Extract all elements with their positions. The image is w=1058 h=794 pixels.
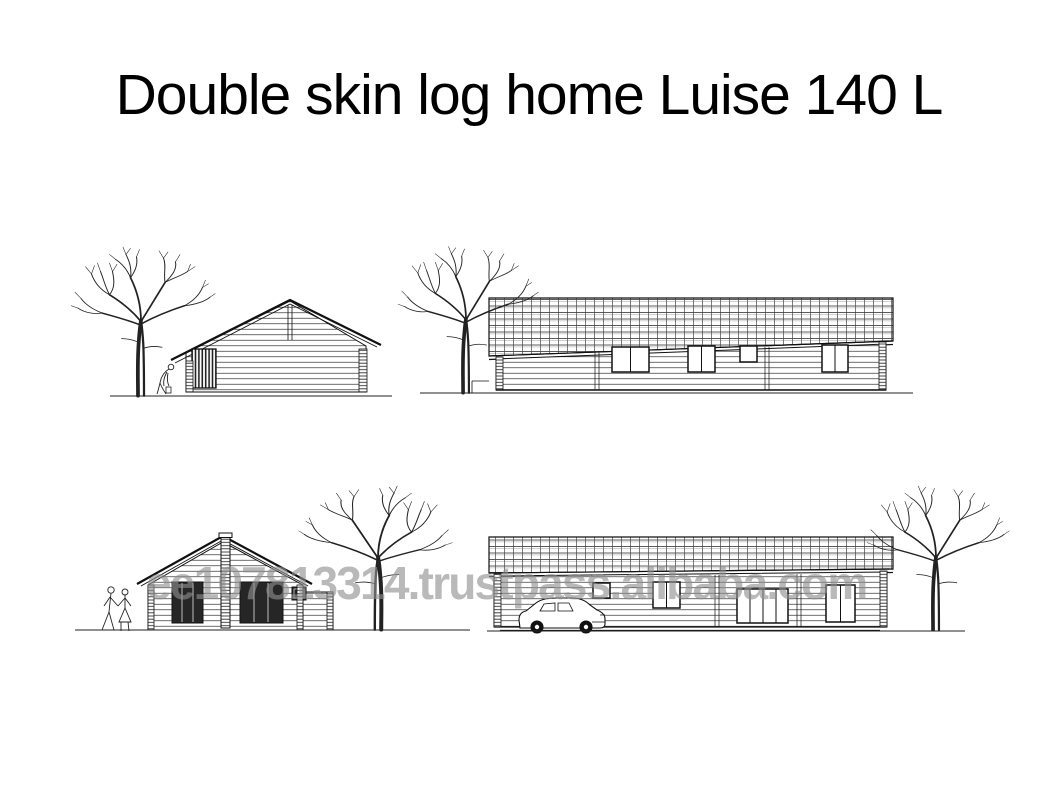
corner-logs-left [186,361,193,392]
elevation-view-top-right [398,247,913,393]
corner-logs-right [327,592,333,630]
corner-logs-right [880,571,887,627]
architectural-drawing-page: Double skin log home Luise 140 L [0,0,1058,794]
tall-window [826,585,855,622]
dark-door [172,582,203,623]
step-mark [472,381,489,393]
window [688,346,715,372]
log-side-house [472,298,893,393]
log-gable-house [171,300,381,392]
slatted-door [192,349,216,388]
elevation-view-bottom-left [75,486,470,631]
window [653,582,680,608]
elevation-view-bottom-right [487,486,1009,633]
patio-door [737,589,788,623]
corner-logs-left [496,357,503,390]
corner-logs-left [494,574,501,627]
corner-logs-mid [297,585,303,630]
window [612,347,649,372]
corner-logs-left [148,585,154,630]
chimney [219,533,232,628]
small-window [593,583,610,598]
corner-logs-right [879,342,886,390]
walking-couple-icon [102,587,131,631]
elevation-drawings [0,0,1058,794]
bending-person-icon [157,364,174,394]
small-window [740,346,757,362]
log-gable-house [137,533,333,630]
dark-door [240,582,283,623]
tiled-roof [489,537,893,573]
corner-logs-right [359,349,367,392]
elevation-view-top-left [71,247,392,396]
window [822,345,848,372]
